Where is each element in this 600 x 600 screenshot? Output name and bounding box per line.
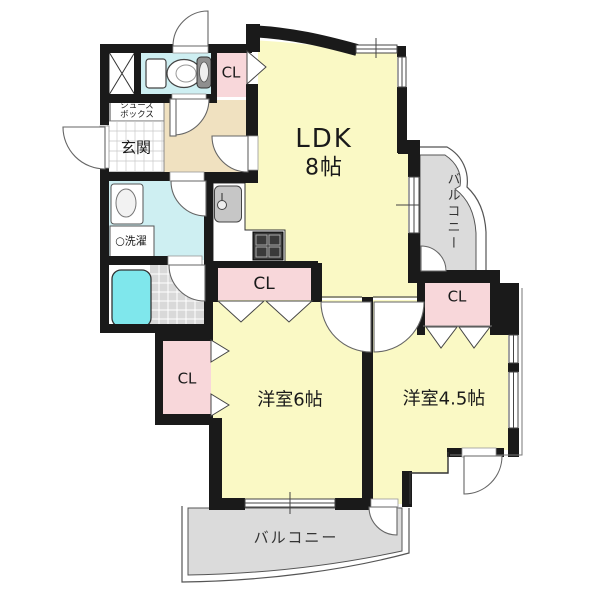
- bathtub: [112, 270, 151, 327]
- wall: [211, 48, 217, 97]
- wall: [155, 414, 213, 425]
- toilet-fixture: [146, 59, 201, 88]
- window: [398, 57, 406, 87]
- balcony-side-label: バルコニー: [443, 172, 462, 252]
- wall: [397, 46, 406, 57]
- wall: [205, 261, 318, 268]
- vanity-sink: [111, 184, 143, 224]
- wall: [213, 263, 218, 302]
- closet-room45-label: CL: [448, 288, 467, 305]
- room45-label: 洋室4.5帖: [403, 390, 486, 411]
- ldk-size-label: 8帖: [305, 155, 343, 180]
- wall: [508, 363, 519, 372]
- wall: [100, 44, 109, 125]
- wall: [209, 418, 222, 510]
- wall: [408, 150, 420, 177]
- wall: [408, 233, 420, 273]
- wall: [100, 172, 170, 181]
- wall: [213, 172, 258, 183]
- entrance-door-swing: [63, 127, 105, 169]
- wall: [209, 498, 245, 510]
- door-opening: [170, 172, 204, 181]
- room45-exterior-door-swing: [464, 456, 502, 494]
- toilet-door-leaf: [170, 99, 176, 136]
- wall: [100, 168, 109, 333]
- wall: [311, 263, 322, 302]
- wall: [100, 324, 213, 333]
- wall: [246, 84, 258, 136]
- closet-room6-label: CL: [178, 370, 197, 387]
- wall: [335, 498, 364, 510]
- stove: [253, 232, 283, 260]
- room6-label: 洋室6帖: [257, 391, 322, 412]
- window: [509, 335, 518, 363]
- ldk-label: LDK: [295, 125, 353, 155]
- wall: [155, 333, 163, 425]
- closet-ldk-label: CL: [253, 275, 274, 295]
- floor-plan: LDK 8帖 洋室6帖 洋室4.5帖 CL CL CL CL 玄関 シューズ ボ…: [0, 0, 600, 600]
- wall: [447, 448, 463, 457]
- wall: [508, 428, 519, 457]
- wall: [155, 333, 213, 341]
- wall: [500, 283, 519, 335]
- wall: [100, 256, 168, 265]
- wall: [134, 50, 141, 97]
- laundry-label: ○洗濯: [115, 236, 147, 249]
- closet-hall-label: CL: [222, 64, 241, 81]
- door-opening: [168, 256, 202, 265]
- balcony-bottom-label: バルコニー: [254, 529, 339, 546]
- shoe-box-label-line2: ボックス: [120, 111, 154, 121]
- window: [509, 372, 518, 428]
- hand-basin: [197, 57, 211, 88]
- kitchen-sink: [215, 186, 242, 222]
- exterior-door-swing: [173, 11, 208, 46]
- pipe-space-hatch: [109, 52, 135, 95]
- floor-plan-drawing: [0, 0, 600, 600]
- entrance-label: 玄関: [121, 139, 151, 156]
